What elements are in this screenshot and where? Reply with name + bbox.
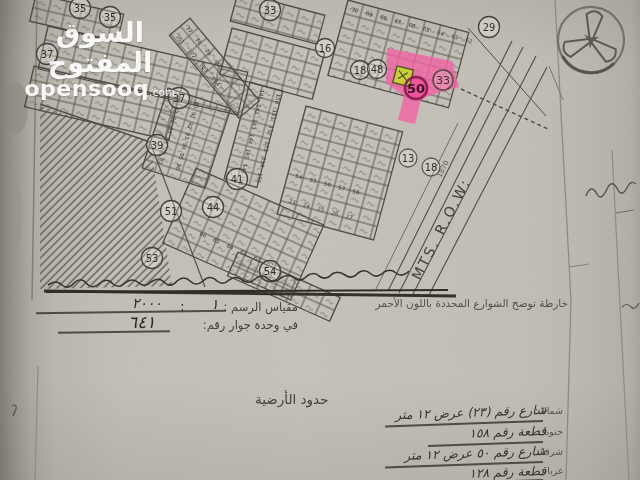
opensooq-watermark: السوق المفتوح opensooq.com — [22, 18, 178, 101]
unit-label: في وحدة جوار رقم: — [203, 318, 298, 332]
domain-tld: .com — [149, 87, 176, 98]
unit-value: ٦٤١ — [128, 312, 155, 332]
opensooq-domain: opensooq.com — [22, 76, 178, 101]
boundaries-title: حدود الأرضية — [255, 391, 329, 407]
scale-label: مقياس الرسم : — [223, 300, 298, 314]
boundary-value-west: قطعة رقم ١٢٨ — [468, 463, 546, 480]
opensooq-arabic-logo: السوق المفتوح — [22, 18, 178, 77]
scale-denominator: ٢٠٠٠ — [132, 295, 162, 311]
red-streets-note: خارطة توضح الشوارع المحددة باللون الأحمر — [376, 297, 568, 309]
scanned-plot-document: 77 78 79 80 101 102 103 104 141 142 143 … — [0, 0, 640, 480]
boundary-value-south: قطعة رقم ١٥٨ — [468, 423, 546, 441]
